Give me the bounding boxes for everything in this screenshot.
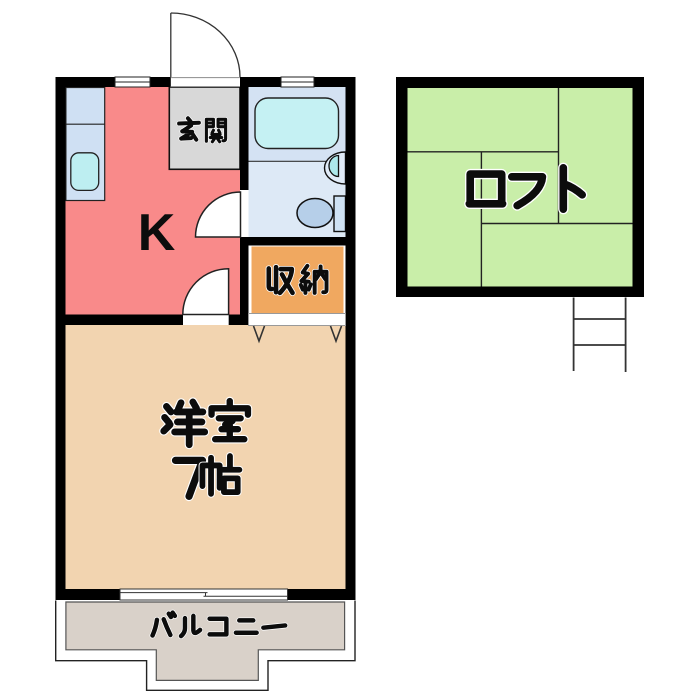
svg-text:K: K <box>138 204 176 262</box>
